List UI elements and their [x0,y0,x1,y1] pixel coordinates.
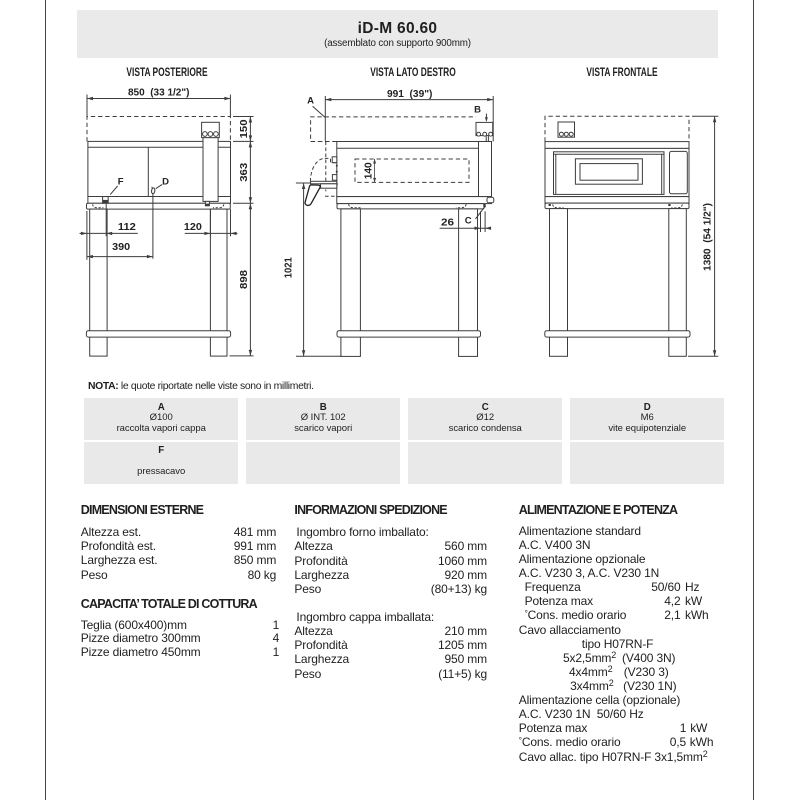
svg-text:150: 150 [238,119,250,138]
svg-text:1380 (54 1/2"): 1380 (54 1/2") [702,203,714,271]
svg-text:26: 26 [441,217,454,229]
svg-text:898: 898 [238,270,250,289]
svg-text:850 (33 1/2"): 850 (33 1/2") [128,87,190,99]
svg-text:120: 120 [184,221,202,233]
svg-text:390: 390 [112,241,130,253]
svg-text:B: B [474,104,481,115]
svg-text:C: C [465,216,472,227]
svg-text:1021: 1021 [283,257,295,278]
svg-text:363: 363 [238,163,250,182]
svg-text:A: A [307,96,314,107]
svg-text:D: D [162,176,169,187]
svg-text:112: 112 [118,221,136,233]
svg-text:991 (39"): 991 (39") [387,88,433,100]
svg-text:140: 140 [362,162,374,179]
svg-text:F: F [118,176,124,187]
